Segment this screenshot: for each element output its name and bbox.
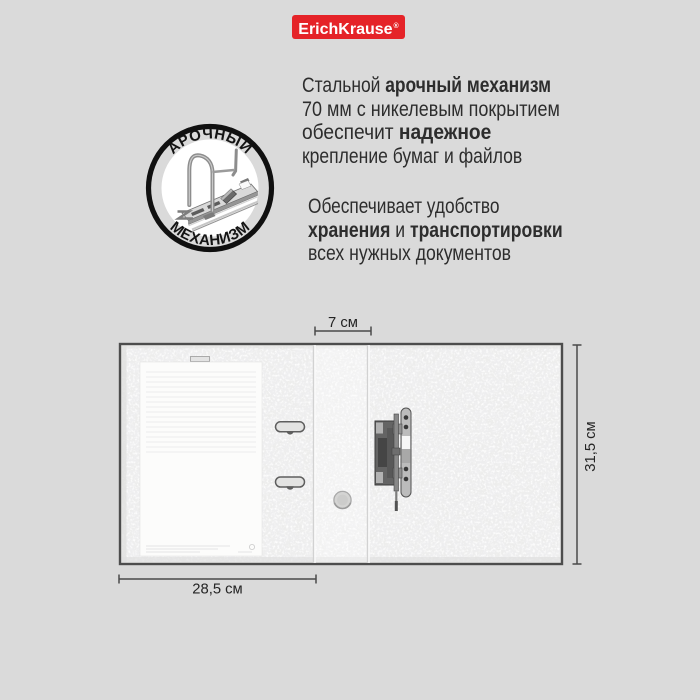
svg-text:28,5 см: 28,5 см xyxy=(192,582,242,598)
svg-text:31,5 см: 31,5 см xyxy=(583,421,599,471)
svg-text:7 см: 7 см xyxy=(328,315,358,331)
